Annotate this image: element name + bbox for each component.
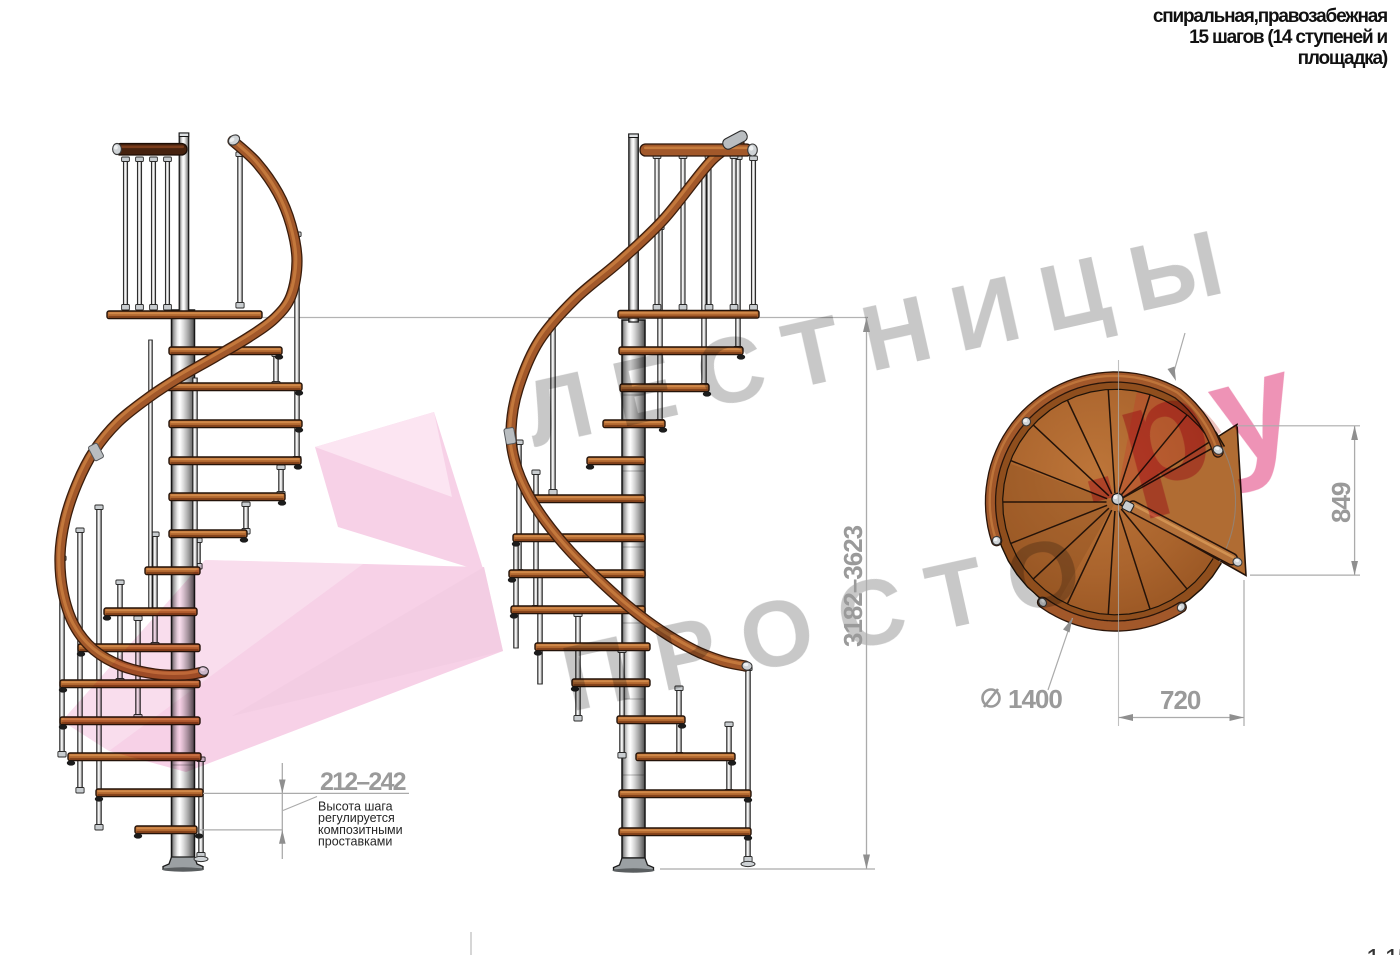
svg-text:площадка): площадка) <box>1298 48 1388 69</box>
svg-text:720: 720 <box>1160 685 1201 715</box>
svg-text:спиральная,правозабежная: спиральная,правозабежная <box>1153 6 1387 27</box>
svg-text:3182–3623: 3182–3623 <box>838 525 868 647</box>
svg-text:1.15: 1.15 <box>1366 943 1400 955</box>
svg-text:проставками: проставками <box>318 835 392 849</box>
svg-text:212–242: 212–242 <box>320 768 406 796</box>
svg-text:1400: 1400 <box>1008 684 1062 714</box>
svg-text:15 шагов (14 ступеней и: 15 шагов (14 ступеней и <box>1189 27 1387 48</box>
svg-text:849: 849 <box>1326 482 1356 523</box>
